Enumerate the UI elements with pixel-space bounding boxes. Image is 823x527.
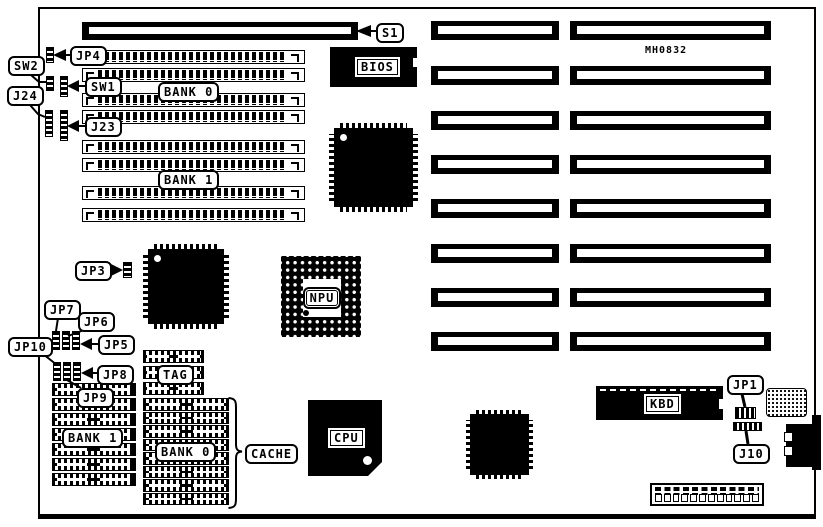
callout-sw1: SW1 [85,77,122,97]
callout-j24: J24 [7,86,44,106]
callout-s1: S1 [376,23,404,43]
label-cache: CACHE [245,444,298,464]
label-memory-bank1: BANK 1 [158,170,219,190]
callout-jp1: JP1 [727,375,764,395]
callout-jp5: JP5 [98,335,135,355]
callout-jp3: JP3 [75,261,112,281]
callout-jp9: JP9 [77,388,114,408]
callout-jp8: JP8 [97,365,134,385]
callout-jp7: JP7 [44,300,81,320]
label-cache-bank1: BANK 1 [62,428,123,448]
callout-sw2: SW2 [8,56,45,76]
label-cache-bank0: BANK 0 [155,442,216,462]
callout-jp4: JP4 [70,46,107,66]
callout-j10: J10 [733,444,770,464]
callout-jp6: JP6 [78,312,115,332]
callout-jp10: JP10 [8,337,53,357]
label-memory-bank0: BANK 0 [158,82,219,102]
motherboard-diagram: MH0832 BANK 0 BANK 1 BIOS NPU [0,0,823,527]
callout-j23: J23 [85,117,122,137]
label-cache-tag: TAG [157,365,194,385]
callout-leader-lines [0,0,823,527]
